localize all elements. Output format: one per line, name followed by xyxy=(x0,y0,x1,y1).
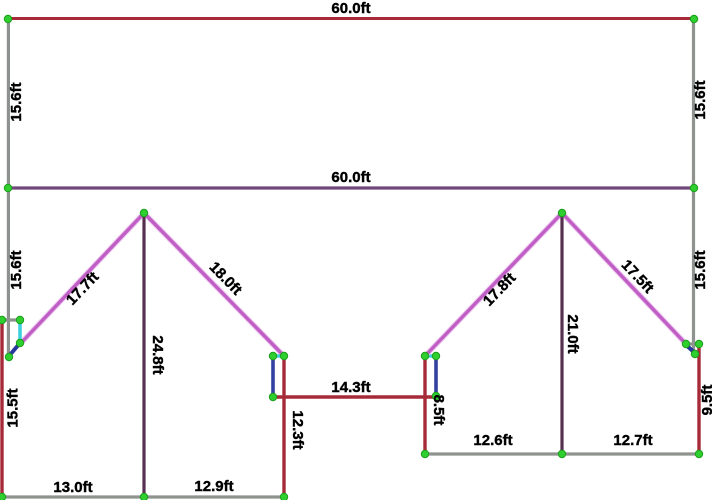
svg-text:15.6ft: 15.6ft xyxy=(8,82,25,121)
svg-text:15.6ft: 15.6ft xyxy=(692,250,709,289)
svg-text:14.3ft: 14.3ft xyxy=(331,379,370,396)
svg-text:24.8ft: 24.8ft xyxy=(149,335,166,374)
svg-text:13.0ft: 13.0ft xyxy=(53,479,92,496)
svg-text:60.0ft: 60.0ft xyxy=(331,0,370,17)
svg-text:9.5ft: 9.5ft xyxy=(699,385,712,416)
svg-text:15.6ft: 15.6ft xyxy=(692,80,709,119)
svg-text:12.7ft: 12.7ft xyxy=(613,432,652,449)
svg-text:12.3ft: 12.3ft xyxy=(289,410,306,449)
svg-text:15.6ft: 15.6ft xyxy=(8,250,25,289)
svg-text:21.0ft: 21.0ft xyxy=(564,314,581,353)
svg-text:12.6ft: 12.6ft xyxy=(473,432,512,449)
svg-text:15.5ft: 15.5ft xyxy=(4,388,21,427)
svg-text:60.0ft: 60.0ft xyxy=(331,169,370,186)
svg-text:8.5ft: 8.5ft xyxy=(430,395,447,426)
svg-text:12.9ft: 12.9ft xyxy=(194,478,233,495)
